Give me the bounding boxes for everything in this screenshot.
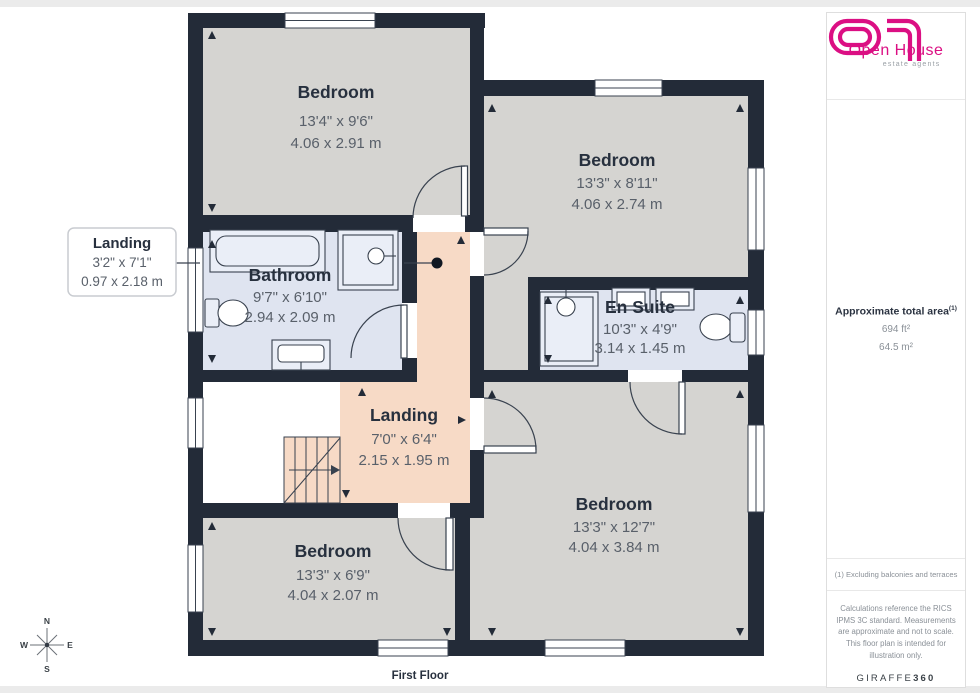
compass-north-label: N <box>44 616 50 626</box>
room-imperial-dims: 7'0" x 6'4" <box>371 431 437 448</box>
compass-west-label: W <box>20 640 29 650</box>
total-area-imperial: 694 ft² <box>882 324 910 335</box>
room-name: Bedroom <box>298 82 375 102</box>
wall-segment <box>484 370 764 382</box>
door-opening <box>398 503 450 518</box>
wall-segment <box>188 640 764 656</box>
door-leaf <box>401 305 407 358</box>
disclaimer-text: Calculations reference the RICS IPMS 3C … <box>827 591 965 661</box>
door-leaf <box>679 382 685 434</box>
open-house-logo-icon <box>827 13 931 61</box>
wall-segment <box>528 290 540 370</box>
door-leaf <box>484 446 536 453</box>
window <box>285 13 375 28</box>
window <box>188 398 203 448</box>
compass-icon: N E S W <box>20 616 73 674</box>
room-label-ensuite: En Suite 10'3" x 4'9" 3.14 x 1.45 m <box>595 297 686 357</box>
door-leaf <box>484 228 528 235</box>
room-name: Bedroom <box>295 541 372 561</box>
agency-tagline: estate agents <box>849 61 944 68</box>
compass-east-label: E <box>67 640 73 650</box>
room-name: En Suite <box>605 297 675 317</box>
sink-icon <box>272 340 330 370</box>
door-leaf <box>462 166 468 216</box>
room-name: Bedroom <box>579 150 656 170</box>
room-name: Bedroom <box>576 494 653 514</box>
room-metric-dims: 3.14 x 1.45 m <box>595 340 686 357</box>
room-imperial-dims: 13'3" x 6'9" <box>296 567 370 584</box>
door-opening <box>413 215 465 232</box>
window <box>188 248 203 332</box>
window <box>748 310 764 355</box>
wall-segment <box>455 518 470 640</box>
room-name: Landing <box>370 405 438 425</box>
wall-segment <box>188 370 417 382</box>
landing-corridor-floor <box>417 232 470 382</box>
shower-icon <box>338 230 398 290</box>
door-leaf <box>446 518 453 570</box>
floor-title: First Floor <box>392 670 449 682</box>
window <box>595 80 662 96</box>
callout-metric-dims: 0.97 x 2.18 m <box>81 274 163 289</box>
room-label-bathroom: Bathroom 9'7" x 6'10" 2.94 x 2.09 m <box>245 265 336 326</box>
window <box>188 545 203 612</box>
wall-segment <box>748 80 764 656</box>
room-label-bedroom-top-left: Bedroom 13'4" x 9'6" 4.06 x 2.91 m <box>291 82 382 152</box>
window <box>748 168 764 250</box>
room-label-bedroom-bottom-right: Bedroom 13'3" x 12'7" 4.04 x 3.84 m <box>569 494 660 556</box>
giraffe360-brand-name: GIRAFFE <box>856 673 913 684</box>
room-metric-dims: 2.15 x 1.95 m <box>359 452 450 469</box>
giraffe360-brand-number: 360 <box>913 673 935 684</box>
area-footnote: (1) Excluding balconies and terraces <box>827 559 965 591</box>
total-area-section: Approximate total area(1) 694 ft² 64.5 m… <box>827 100 965 559</box>
toilet-icon <box>700 313 745 342</box>
total-area-note-ref: (1) <box>949 305 957 312</box>
room-metric-dims: 4.06 x 2.91 m <box>291 135 382 152</box>
room-name: Bathroom <box>249 265 332 285</box>
room-imperial-dims: 13'3" x 12'7" <box>573 519 655 536</box>
room-imperial-dims: 9'7" x 6'10" <box>253 289 327 306</box>
window <box>378 640 448 656</box>
callout-imperial-dims: 3'2" x 7'1" <box>92 255 151 270</box>
room-metric-dims: 2.94 x 2.09 m <box>245 309 336 326</box>
giraffe360-brand: GIRAFFE360 <box>827 673 965 684</box>
total-area-title-text: Approximate total area <box>835 305 949 317</box>
agency-logo-section: Open House estate agents <box>827 13 965 100</box>
total-area-metric: 64.5 m² <box>879 342 913 353</box>
room-metric-dims: 4.04 x 3.84 m <box>569 539 660 556</box>
callout-room-name: Landing <box>93 235 151 252</box>
room-imperial-dims: 10'3" x 4'9" <box>603 321 677 338</box>
open-house-logo: Open House estate agents <box>849 44 944 68</box>
window <box>545 640 625 656</box>
room-label-bedroom-top-right: Bedroom 13'3" x 8'11" 4.06 x 2.74 m <box>572 150 663 213</box>
room-metric-dims: 4.04 x 2.07 m <box>288 587 379 604</box>
door-opening <box>470 398 484 450</box>
door-opening <box>628 370 682 382</box>
floorplan-page: Landing 3'2" x 7'1" 0.97 x 2.18 m Bedroo… <box>0 0 980 693</box>
total-area-title: Approximate total area(1) <box>835 305 957 318</box>
room-metric-dims: 4.06 x 2.74 m <box>572 196 663 213</box>
room-label-bedroom-bottom-left: Bedroom 13'3" x 6'9" 4.04 x 2.07 m <box>288 541 379 604</box>
toilet-icon <box>205 299 248 327</box>
room-imperial-dims: 13'4" x 9'6" <box>299 113 373 130</box>
room-label-landing: Landing 7'0" x 6'4" 2.15 x 1.95 m <box>359 405 450 469</box>
room-imperial-dims: 13'3" x 8'11" <box>576 175 657 192</box>
door-opening <box>470 232 484 276</box>
window <box>748 425 764 512</box>
callout-anchor-dot <box>432 258 443 269</box>
compass-south-label: S <box>44 664 50 674</box>
info-sidebar: Open House estate agents Approximate tot… <box>826 12 966 688</box>
